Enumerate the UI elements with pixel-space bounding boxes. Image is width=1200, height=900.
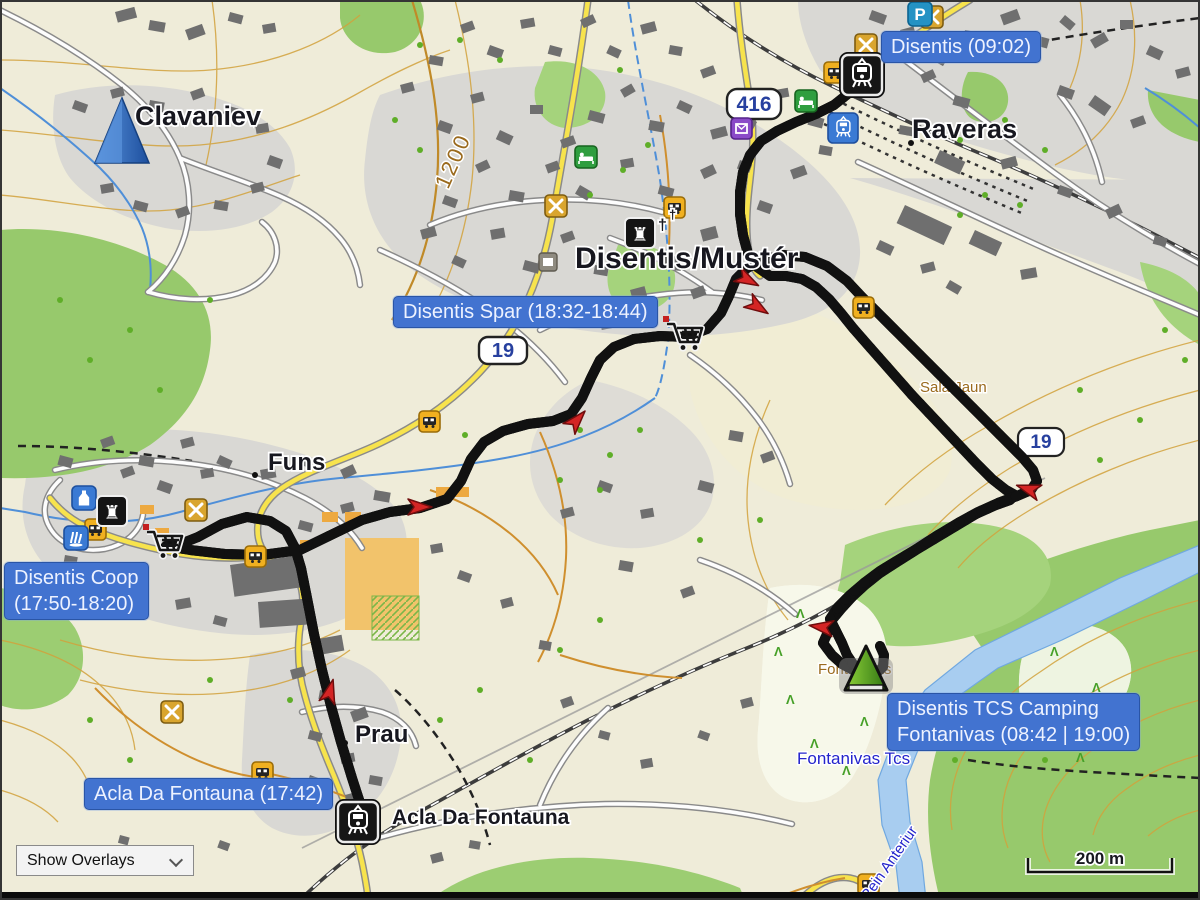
church-cross-icon: †: [669, 207, 676, 222]
monument-icon: ♜: [97, 496, 127, 526]
waypoint-label-acla[interactable]: Acla Da Fontauna (17:42): [84, 778, 333, 810]
svg-text:Λ: Λ: [774, 644, 783, 659]
svg-text:Λ: Λ: [786, 692, 795, 707]
town-label-acla: Acla Da Fontauna: [392, 806, 570, 829]
map-canvas: Sala Jaun 1200 Fontanivas 19 Λ Λ Λ Λ Λ Λ…: [2, 2, 1198, 898]
svg-text:Λ: Λ: [1050, 644, 1059, 659]
station-poi-icon: [828, 113, 858, 143]
town-label-clavaniev: Clavaniev: [135, 101, 261, 131]
restaurant-icon: [161, 701, 183, 723]
bus-stop-icon: [853, 297, 874, 318]
restaurant-icon: [545, 195, 567, 217]
svg-text:Λ: Λ: [1076, 750, 1085, 765]
parking-icon: P: [908, 2, 932, 26]
restaurant-icon: [185, 499, 207, 521]
svg-text:Λ: Λ: [796, 606, 805, 621]
bus-stop-icon: [245, 546, 266, 567]
waypoint-label-coop-line1: Disentis Coop: [14, 565, 139, 591]
town-label-funs: Funs: [268, 449, 325, 476]
bus-stop-icon: [419, 411, 440, 432]
waypoint-label-camping-line2: Fontanivas (08:42 | 19:00): [897, 722, 1130, 748]
drinking-water-icon: [72, 486, 96, 510]
waterfall-icon: [64, 526, 88, 550]
waypoint-label-camping[interactable]: Disentis TCS Camping Fontanivas (08:42 |…: [887, 693, 1140, 751]
lodging-icon: [575, 146, 597, 168]
church-cross-icon: †: [658, 217, 667, 234]
train-station-waypoint-acla[interactable]: [336, 800, 380, 844]
svg-text:19: 19: [1030, 432, 1051, 453]
town-label-disentis-muster: Disentis/Mustér: [575, 242, 799, 275]
waypoint-label-spar[interactable]: Disentis Spar (18:32-18:44): [393, 296, 658, 328]
post-office-icon: [731, 118, 752, 139]
waypoint-label-camping-line1: Disentis TCS Camping: [897, 696, 1130, 722]
town-label-prau: Prau: [355, 721, 408, 748]
map-viewport[interactable]: Sala Jaun 1200 Fontanivas 19 Λ Λ Λ Λ Λ Λ…: [0, 0, 1200, 900]
road-shield-19-partial: 19: [1018, 428, 1064, 456]
photo-poi-icon: [539, 253, 557, 271]
bottom-bar: [2, 892, 1198, 898]
svg-text:416: 416: [736, 93, 771, 116]
show-overlays-value: Show Overlays: [27, 852, 135, 869]
label-fontanivas-tcs: Fontanivas Tcs: [797, 749, 910, 768]
svg-text:Λ: Λ: [860, 714, 869, 729]
waypoint-label-coop[interactable]: Disentis Coop (17:50-18:20): [4, 562, 149, 620]
scale-bar-label: 200 m: [1076, 849, 1124, 868]
svg-text:P: P: [914, 5, 925, 24]
waypoint-label-coop-line2: (17:50-18:20): [14, 591, 139, 617]
town-label-raveras: Raveras: [912, 114, 1017, 144]
svg-text:♜: ♜: [103, 503, 120, 524]
lodging-icon: [795, 90, 817, 112]
waypoint-label-disentis[interactable]: Disentis (09:02): [881, 31, 1041, 63]
train-station-waypoint-disentis[interactable]: [840, 53, 884, 97]
show-overlays-dropdown[interactable]: Show Overlays: [16, 845, 194, 876]
chevron-down-icon: [169, 853, 183, 867]
road-shield-19: 19: [479, 337, 527, 364]
road-shield-416: 416: [727, 89, 781, 119]
svg-text:19: 19: [492, 340, 514, 362]
